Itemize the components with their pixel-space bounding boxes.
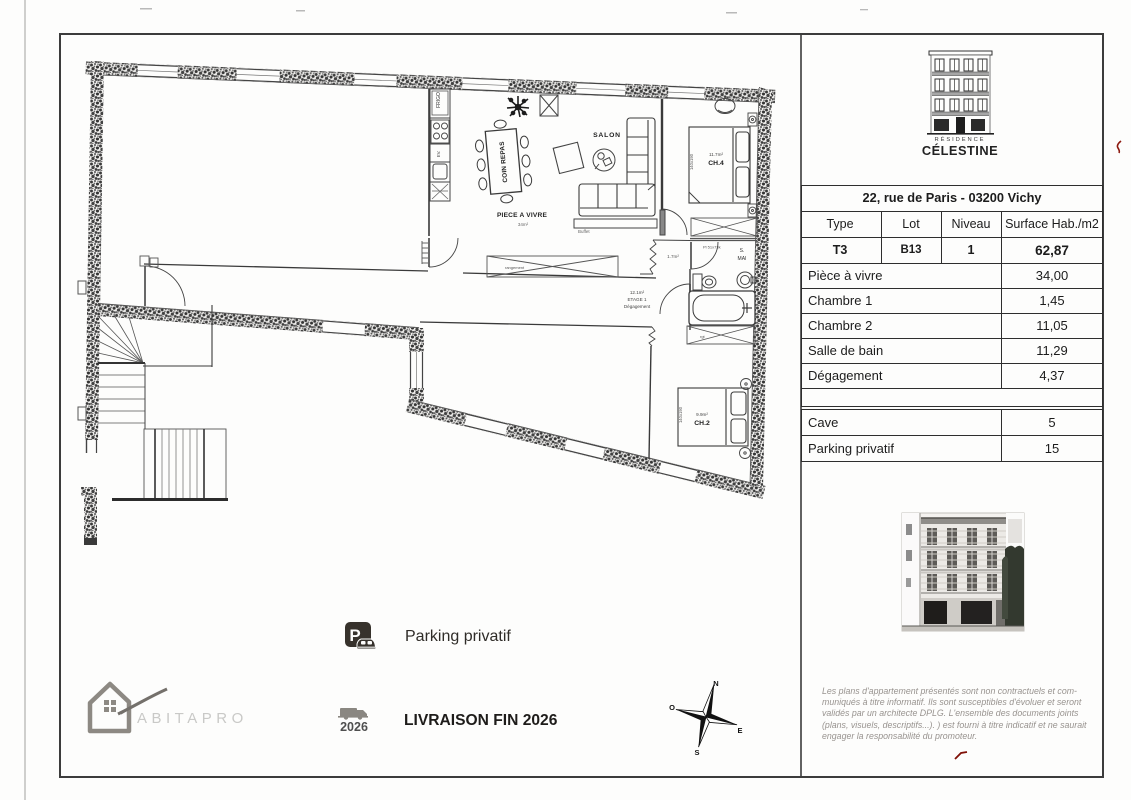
svg-text:CH.2: CH.2 <box>694 420 710 427</box>
svg-text:FRIGO: FRIGO <box>436 92 442 108</box>
svg-text:140x190: 140x190 <box>689 153 694 170</box>
svg-text:Buffet: Buffet <box>578 229 590 234</box>
svg-text:N: N <box>713 679 718 688</box>
svg-text:S.: S. <box>740 248 745 254</box>
svg-text:12.1m²: 12.1m² <box>630 290 645 295</box>
svg-text:O: O <box>669 703 675 712</box>
svg-text:Dégagement: Dégagement <box>624 304 651 309</box>
svg-text:ETAGE 1: ETAGE 1 <box>627 297 647 302</box>
svg-text:9.9m²: 9.9m² <box>696 412 708 417</box>
svg-text:140x190: 140x190 <box>678 406 683 423</box>
svg-text:rangement: rangement <box>505 265 525 270</box>
svg-text:rgt: rgt <box>700 334 706 339</box>
svg-text:MAI: MAI <box>738 256 747 262</box>
svg-text:CH.4: CH.4 <box>708 160 724 167</box>
svg-text:S: S <box>694 748 699 757</box>
svg-text:SALON: SALON <box>593 132 621 139</box>
svg-text:PIECE A VIVRE: PIECE A VIVRE <box>497 212 548 219</box>
svg-text:34m²: 34m² <box>518 222 529 227</box>
svg-text:1.7m²: 1.7m² <box>667 254 679 259</box>
svg-text:11.7m²: 11.7m² <box>709 152 723 157</box>
svg-text:EV.: EV. <box>436 151 441 158</box>
svg-text:E: E <box>737 726 742 735</box>
